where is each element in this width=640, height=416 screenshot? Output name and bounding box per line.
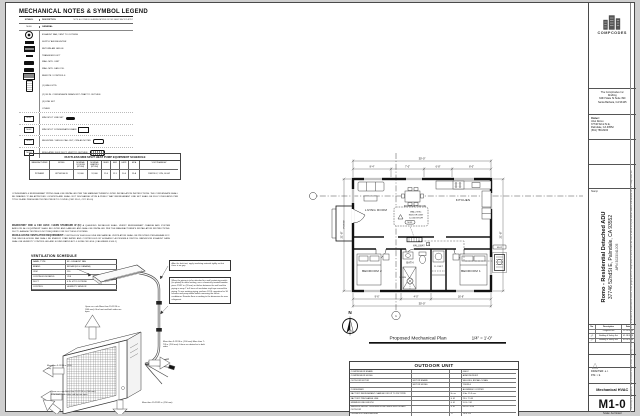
dim-top-seg: 6'-8" — [436, 166, 441, 169]
title-block: COMPCODES The CompCodes IncDrafting3463 … — [588, 3, 636, 412]
note-3-heading: WHOLE-HOUSE VENTILATION REQUIREMENT: — [12, 235, 64, 237]
callout-line-3: 12,000 BTU/H — [409, 218, 423, 220]
room-label: KITCHEN — [456, 198, 471, 202]
outdoor-unit-table-title: OUTDOOR UNIT — [350, 362, 518, 370]
indoor-unit-pointer-arrow-icon — [77, 269, 91, 276]
ownership-fine-print: Ownership of Documents: This document an… — [631, 5, 635, 410]
plan-title: Proposed Mechanical Plan — [389, 336, 446, 342]
legend-row: (2) 3/4 IN. CONDENSATE DRAIN W/ P-TRAP T… — [19, 92, 133, 99]
legend-symbol-icon — [24, 46, 35, 52]
outdoor-row-unit: ft. M — [450, 406, 462, 413]
equipment-cell: 12,000 — [88, 170, 102, 178]
condenser-tag: M-02 — [497, 247, 503, 249]
legend-row-label: RETURN AIR GRILLE — [40, 48, 64, 51]
install-note-1: After the leak test, apply insulating ma… — [169, 260, 231, 271]
outdoor-row-label: MAXIMUM HEIGHT DIFFERENCE BETWEEN INDOOR… — [350, 406, 412, 413]
caption-underline — [369, 342, 506, 344]
legend-code-label: REGISTER / GRILLE CALLOUT, CFM AS NOTED — [40, 140, 91, 143]
legend-row-label: WALL MTD. UNIT — [40, 61, 59, 64]
note-leader-arrows — [160, 266, 168, 314]
legend-code-label: MINI SPLIT LINE SET — [40, 117, 64, 120]
room-label: DINING NOOK — [404, 204, 426, 208]
clearance-note-top: Open as a rule More than 19-11/16 in. (5… — [85, 306, 124, 314]
room-label: BEDROOM 2 — [362, 269, 382, 273]
outdoor-unit-rows: COMPRESSOR BRAND GMCC COMPRESSOR MODEL A… — [350, 370, 518, 416]
note-2-heading: MANDATORY CMC & CEC HVAC / HERS STANDARD… — [12, 225, 81, 227]
equipment-cell: 15 A — [129, 170, 140, 178]
legend-row-label: (2) 3/4 IN. CONDENSATE DRAIN W/ P-TRAP T… — [40, 94, 101, 97]
legend-row: SUPPLY AIR REGISTER — [19, 39, 133, 46]
outdoor-row-unit: °F — [450, 413, 462, 416]
legend-section-label: GENERAL — [40, 26, 53, 28]
legend-symbol-rows: EXHAUST FAN, VENT TO OUTSIDE SUPPLY AIR … — [19, 31, 133, 112]
legend-code-tag: M-01 — [24, 116, 34, 122]
sheet-scale-note: Scale: As Noted — [589, 412, 636, 415]
dim-top-seg: 8'-4" — [370, 166, 375, 169]
project-title-rotated: Romo - Residential Detached ADU 37746 52… — [589, 191, 631, 323]
legend-row: RETURN AIR GRILLE — [19, 46, 133, 53]
mechanical-floor-plan: 1 — [306, 149, 586, 349]
legend-row: EXHAUST FAN, VENT TO OUTSIDE — [19, 31, 133, 39]
equipment-header-cell: VOLT/PHASE/HZ — [140, 161, 178, 171]
legend-symbol-icon — [26, 80, 33, 92]
legend-section-row: M-00 GENERAL — [19, 24, 133, 31]
outdoor-row-sublabel — [412, 406, 450, 413]
equipment-cell: 19.0 — [102, 170, 111, 178]
project-name: Romo - Residential Detached ADU — [601, 191, 608, 323]
north-label: N — [348, 310, 352, 315]
equipment-schedule-headers: MANUFACTURERMODELNOMINAL COOLING (BTU/H)… — [30, 161, 180, 171]
grid-bubble-left — [309, 192, 316, 199]
refrigerant-pipe-run — [139, 273, 162, 364]
equipment-header-cell: MODEL — [50, 161, 74, 171]
room-label: BATH — [406, 262, 413, 265]
legend-symbol-icon — [23, 73, 35, 80]
legend-symbol-icon — [24, 68, 34, 72]
legend-code-label: MINI SPLIT CONDENSATE DRAIN — [40, 129, 76, 132]
legend-sample-shape-icon — [66, 117, 75, 121]
callout-line-1: WALL MTD. — [410, 211, 422, 214]
symbol-legend: MECHANICAL NOTES & SYMBOL LEGEND SYMBOL … — [19, 9, 133, 158]
legend-row: REMOTE / CONTROLS — [19, 73, 133, 80]
fan-cfm-label: 50 CFM — [399, 277, 406, 279]
dim-top-seg: 7'-0" — [405, 166, 410, 169]
callout-tag: M-01 — [408, 222, 414, 224]
legend-row: WALL MTD. UNIT — [19, 59, 133, 66]
outdoor-unit-iso — [63, 332, 141, 414]
outdoor-unit-row: OPERATION TEMPERATURE °F 14 to 115 — [350, 413, 518, 416]
callout-line-2: INDOOR UNIT — [409, 215, 424, 217]
legend-symbol-icon — [26, 55, 33, 58]
equipment-schedule-title: DUCTLESS MINI SPLIT HEAT PUMP EQUIPMENT … — [30, 154, 180, 161]
equipment-header-cell: NOMINAL COOLING (BTU/H) — [74, 161, 88, 171]
clearance-note-left: More than 3-15/16 in. (100 mm) — [47, 365, 72, 370]
legend-code-tag: M-02 — [24, 127, 34, 133]
equipment-header-cell: MANUFACTURER — [30, 161, 50, 171]
project-apn: APN 3023041005 — [615, 191, 620, 323]
legend-row: WALL MTD. FAN COIL — [19, 66, 133, 73]
legend-note: NOTE: ALL SYMBOLS & ABBREVIATIONS ON THI… — [68, 19, 133, 21]
clearance-note-bottom-left: Open as a rule More than 19-11/16 in. (5… — [51, 391, 97, 396]
north-arrow-icon: N — [343, 310, 358, 336]
outdoor-row-sublabel — [412, 413, 450, 416]
equipment-schedule-table: DUCTLESS MINI SPLIT HEAT PUMP EQUIPMENT … — [29, 153, 181, 180]
legend-row-label: REMOTE / CONTROLS — [40, 75, 65, 78]
dim-bottom-seg: 9'-6" — [375, 296, 380, 299]
legend-symbol-icon — [24, 61, 34, 65]
plan-caption: Proposed Mechanical Plan 1/4" = 1'-0" — [369, 336, 506, 344]
room-label: PORCH — [344, 219, 346, 228]
legend-sample-shape-icon — [93, 139, 104, 145]
legend-code-tag: M-03 — [24, 139, 34, 145]
legend-code-row: M-03 REGISTER / GRILLE CALLOUT, CFM AS N… — [19, 135, 133, 147]
legend-row: (1) WALL MTD. — [19, 80, 133, 92]
clearance-note-right: More than 3-15/16 in. (100 mm) More than… — [163, 341, 207, 349]
legend-col-symbol: SYMBOL — [19, 19, 40, 21]
clearance-note-bottom-right: More than 19-29/32 in. (350 mm) — [142, 402, 180, 405]
equipment-header-cell: HSPF — [120, 161, 129, 171]
sheet: MECHANICAL NOTES & SYMBOL LEGEND SYMBOL … — [5, 2, 635, 412]
firm-logo-text: COMPCODES — [598, 31, 627, 35]
legend-symbol-icon — [25, 41, 34, 44]
dim-top-seg: 8'-0" — [469, 166, 474, 169]
legend-row: TRANSFER DUCT — [19, 53, 133, 60]
legend-code-row: M-01 MINI SPLIT LINE SET — [19, 112, 133, 124]
owner-line: (661) 789-8200 — [591, 129, 634, 132]
legend-row-label: (1) WALL MTD. — [40, 85, 57, 88]
room-label: CLOSET — [434, 266, 444, 268]
room-label: HALLWAY — [413, 244, 425, 247]
compcodes-buildings-icon — [601, 13, 623, 30]
dim-left-total: 21'-8" — [340, 232, 344, 239]
legend-title: MECHANICAL NOTES & SYMBOL LEGEND — [19, 9, 133, 17]
outdoor-row-value: 65.6 ft. 20 M — [462, 406, 516, 413]
outdoor-unit-row: MAXIMUM HEIGHT DIFFERENCE BETWEEN INDOOR… — [350, 406, 518, 413]
equipment-cell: 12,000 — [74, 170, 88, 178]
legend-code-rows: M-01 MINI SPLIT LINE SET M-02 MINI SPLIT… — [19, 112, 133, 158]
dim-bottom-seg: 4'-0" — [414, 296, 419, 299]
legend-row-label: EXHAUST FAN, VENT TO OUTSIDE — [40, 34, 78, 37]
legend-row: (3) LINE SET — [19, 99, 133, 106]
legend-row-label: (3) LINE SET — [40, 101, 55, 104]
legend-row-label: SUPPLY AIR REGISTER — [40, 41, 66, 44]
outdoor-row-label: OPERATION TEMPERATURE — [350, 413, 412, 416]
dim-bottom-total: 30'-0" — [419, 302, 426, 306]
equipment-header-cell: NOMINAL HEATING (BTU/H) — [88, 161, 102, 171]
dim-bottom-seg: 16'-6" — [458, 296, 464, 299]
equipment-header-cell: MCA — [129, 161, 140, 171]
indoor-unit-iso — [93, 265, 145, 285]
fine-print-strip: Ownership of Documents: This document an… — [630, 3, 636, 412]
equipment-cell: WYS012A-19 — [50, 170, 74, 178]
legend-row: OTHER — [19, 106, 133, 113]
legend-header: SYMBOL DESCRIPTION NOTE: ALL SYMBOLS & A… — [19, 17, 133, 24]
revision-description: Building & Safety Set — [596, 339, 622, 344]
legend-symbol-icon — [25, 31, 33, 39]
drawing-sheet-page: MECHANICAL NOTES & SYMBOL LEGEND SYMBOL … — [0, 0, 640, 416]
revision-number: 2 — [589, 339, 596, 344]
plan-scale: 1/4" = 1'-0" — [472, 336, 493, 341]
legend-sample-shape-icon — [78, 127, 89, 133]
legend-section-code: M-00 — [19, 26, 40, 28]
room-label: BEDROOM 1 — [461, 269, 481, 273]
room-label: LIVING ROOM — [365, 208, 388, 212]
dim-top-total: 30'-0" — [419, 157, 426, 161]
legend-col-description: DESCRIPTION — [40, 19, 68, 21]
equipment-header-cell: SEER — [102, 161, 111, 171]
equipment-header-cell: EER — [111, 161, 120, 171]
equipment-cell: 10.0 — [120, 170, 129, 178]
general-note-paragraph: CONDENSATE & REFRIGERANT PIPING SHALL BE… — [12, 193, 178, 202]
legend-row-label: WALL MTD. FAN COIL — [40, 68, 64, 71]
outdoor-unit-table: OUTDOOR UNIT COMPRESSOR BRAND GMCC COMPR… — [349, 361, 519, 416]
equipment-cell: 208/230 V, 1 PH, 60 HZ — [140, 170, 178, 178]
mandatory-notes: MANDATORY CMC & CEC HVAC / HERS STANDARD… — [12, 225, 170, 244]
install-note-2: When the piping is to be attached to a w… — [169, 277, 231, 304]
legend-row-label: TRANSFER DUCT — [40, 55, 60, 58]
dim-right-total: 21'-8" — [499, 232, 503, 239]
outdoor-row-value: 14 to 115 — [462, 413, 516, 416]
equipment-schedule-row: PIONEERWYS012A-1912,00012,00019.011.510.… — [30, 170, 180, 178]
equipment-cell: PIONEER — [30, 170, 50, 178]
pm-label: P.M.: r.k. — [591, 374, 634, 378]
legend-code-row: M-02 MINI SPLIT CONDENSATE DRAIN — [19, 124, 133, 136]
equipment-cell: 11.5 — [111, 170, 120, 178]
legend-row-label: OTHER — [40, 108, 50, 111]
